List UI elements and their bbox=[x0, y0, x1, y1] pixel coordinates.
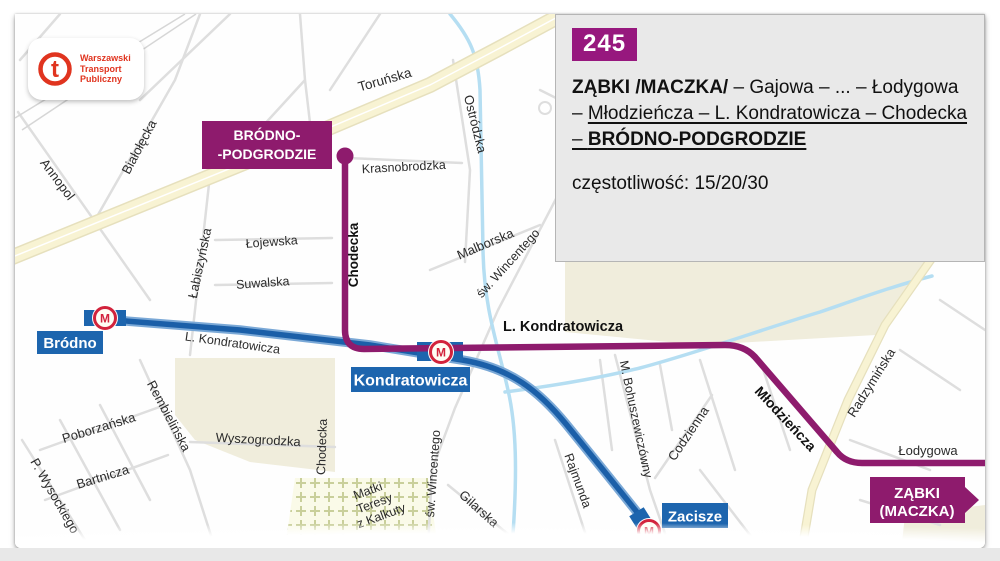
logo-line-1: Warszawski bbox=[80, 53, 131, 64]
terminal-label-brodno-podgrodzie: BRÓDNO- -PODGRODZIE bbox=[202, 121, 332, 169]
wtp-t-icon: t bbox=[36, 50, 74, 88]
svg-text:M: M bbox=[644, 525, 654, 539]
wtp-logo-text: Warszawski Transport Publiczny bbox=[80, 53, 131, 85]
route-description: ZĄBKI /MACZKA/ – Gajowa – ... – Łodygowa… bbox=[572, 75, 972, 153]
svg-text:ZĄBKI: ZĄBKI bbox=[894, 485, 940, 502]
svg-text:Zacisze: Zacisze bbox=[668, 509, 722, 526]
wtp-logo-card: t Warszawski Transport Publiczny bbox=[28, 38, 144, 100]
svg-text:M: M bbox=[100, 312, 110, 326]
bottom-strip bbox=[0, 548, 1000, 561]
metro-icon-brodno: M bbox=[92, 305, 118, 331]
svg-text:BRÓDNO-: BRÓDNO- bbox=[234, 126, 301, 143]
route-terminus-dot bbox=[337, 148, 354, 165]
station-label-brodno: Bródno bbox=[37, 331, 103, 354]
station-label-kondratowicza: Kondratowicza bbox=[351, 367, 470, 392]
station-label-zacisze: Zacisze bbox=[662, 503, 728, 528]
route-info-box: 245 ZĄBKI /MACZKA/ – Gajowa – ... – Łody… bbox=[555, 14, 985, 262]
street-label-chodecka-south: Chodecka bbox=[314, 418, 330, 475]
svg-text:M: M bbox=[436, 346, 446, 360]
roundabout bbox=[539, 102, 551, 114]
street-label-chodecka-north: Chodecka bbox=[346, 222, 361, 287]
frequency-text: częstotliwość: 15/20/30 bbox=[572, 173, 968, 195]
route-destination: BRÓDNO-PODGRODZIE bbox=[588, 129, 807, 150]
street-label-lodygowa: Łodygowa bbox=[898, 443, 958, 458]
svg-text:Bródno: Bródno bbox=[43, 335, 96, 352]
line-number-badge: 245 bbox=[572, 28, 637, 61]
svg-text:(MACZKA): (MACZKA) bbox=[880, 503, 955, 520]
svg-text:t: t bbox=[51, 56, 59, 83]
svg-text:Kondratowicza: Kondratowicza bbox=[354, 373, 468, 390]
route-map-slide: M M M Bródno Kondratowicza Zacisze bbox=[0, 0, 1000, 561]
logo-line-3: Publiczny bbox=[80, 74, 131, 85]
metro-icon-zacisze: M bbox=[636, 518, 662, 544]
logo-line-2: Transport bbox=[80, 64, 131, 75]
metro-icon-kondratowicza: M bbox=[428, 339, 454, 365]
terminal-label-zabki-maczka: ZĄBKI (MACZKA) bbox=[870, 477, 979, 523]
svg-text:-PODGRODZIE: -PODGRODZIE bbox=[218, 146, 317, 162]
route-origin: ZĄBKI /MACZKA/ bbox=[572, 77, 728, 98]
street-label-kondratowicza-east: L. Kondratowicza bbox=[503, 319, 624, 335]
